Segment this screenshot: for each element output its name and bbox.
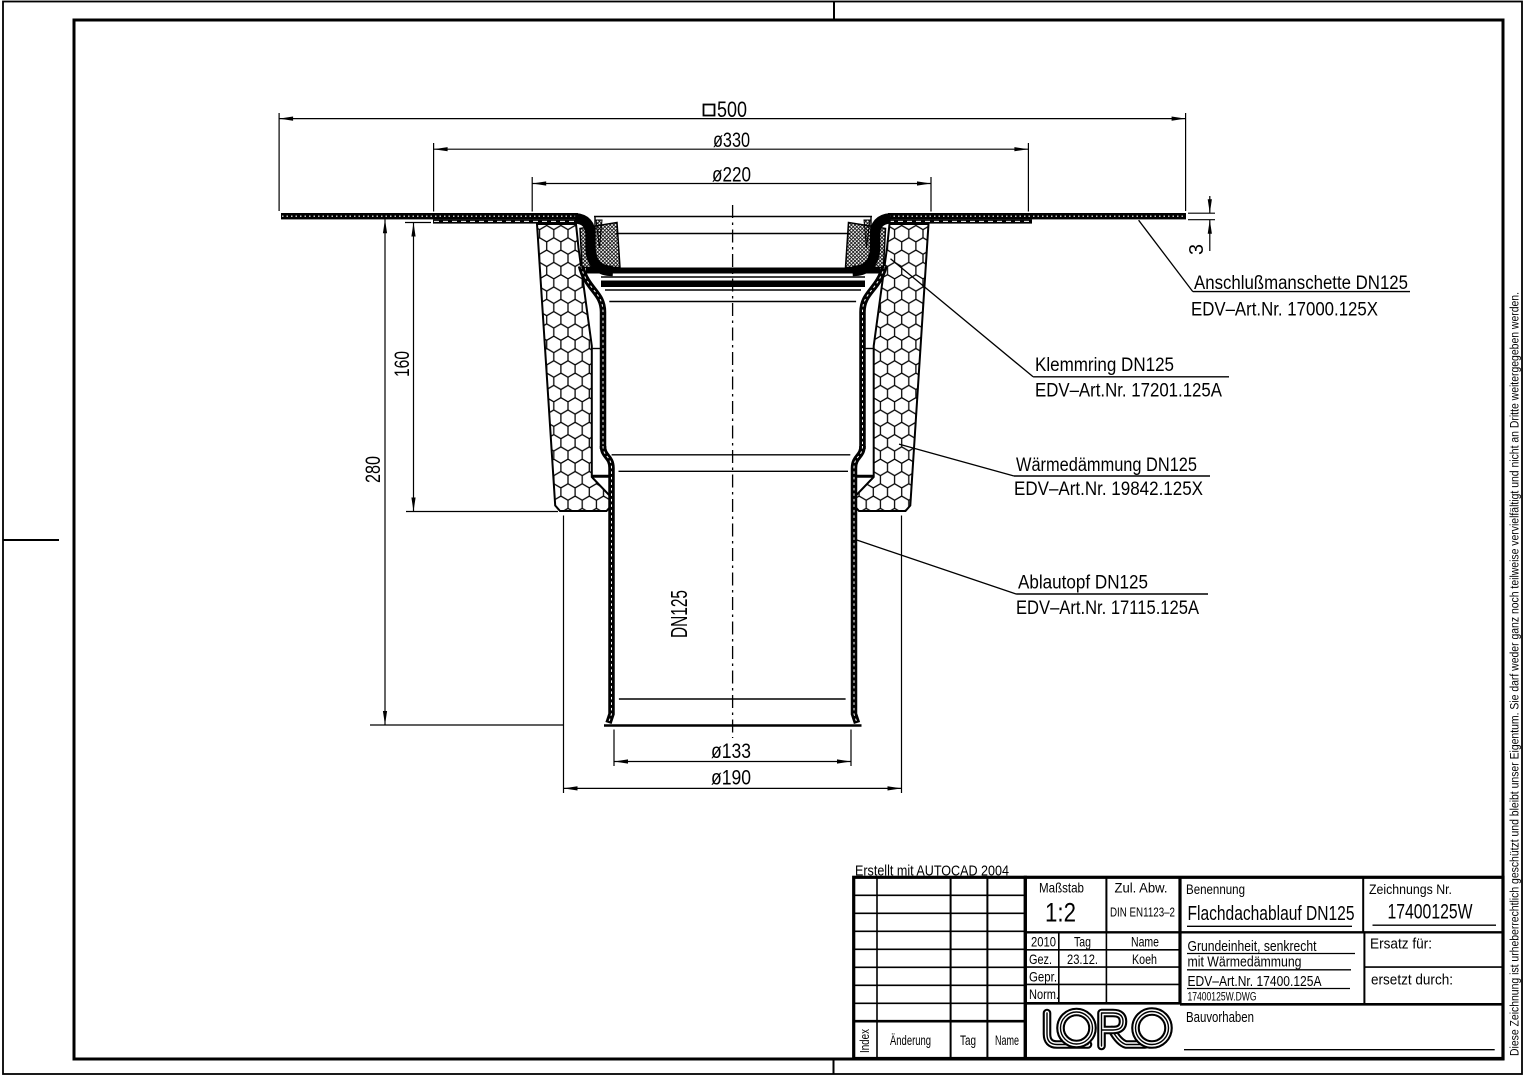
svg-text:Ersatz für:: Ersatz für: xyxy=(1370,937,1432,953)
svg-text:Bauvorhaben: Bauvorhaben xyxy=(1186,1010,1254,1026)
svg-text:Grundeinheit, senkrecht: Grundeinheit, senkrecht xyxy=(1188,939,1317,955)
svg-text:Zul. Abw.: Zul. Abw. xyxy=(1115,880,1168,896)
svg-text:160: 160 xyxy=(391,351,414,377)
svg-text:mit Wärmedämmung: mit Wärmedämmung xyxy=(1188,954,1302,970)
svg-text:EDV–Art.Nr. 19842.125X: EDV–Art.Nr. 19842.125X xyxy=(1014,479,1203,500)
svg-text:Wärmedämmung DN125: Wärmedämmung DN125 xyxy=(1016,455,1197,476)
svg-text:Tag: Tag xyxy=(1074,934,1091,950)
svg-text:Tag: Tag xyxy=(960,1033,976,1048)
svg-text:Name: Name xyxy=(1131,934,1159,950)
svg-text:Index: Index xyxy=(857,1029,872,1053)
svg-text:ø220: ø220 xyxy=(712,163,751,186)
svg-text:EDV–Art.Nr. 17400.125A: EDV–Art.Nr. 17400.125A xyxy=(1188,974,1322,990)
svg-text:Koeh: Koeh xyxy=(1132,951,1157,967)
svg-text:ø190: ø190 xyxy=(711,767,751,790)
svg-text:Änderung: Änderung xyxy=(890,1033,931,1048)
svg-text:ersetzt durch:: ersetzt durch: xyxy=(1371,973,1453,989)
svg-text:2010: 2010 xyxy=(1031,934,1056,950)
svg-text:Gepr.: Gepr. xyxy=(1029,969,1057,985)
svg-text:280: 280 xyxy=(362,456,385,483)
svg-text:Flachdachablauf DN125: Flachdachablauf DN125 xyxy=(1188,903,1355,925)
svg-text:Maßstab: Maßstab xyxy=(1039,880,1084,896)
svg-text:Gez.: Gez. xyxy=(1029,951,1052,967)
svg-text:Anschlußmanschette DN125: Anschlußmanschette DN125 xyxy=(1194,273,1408,294)
svg-text:EDV–Art.Nr. 17201.125A: EDV–Art.Nr. 17201.125A xyxy=(1035,381,1222,402)
svg-text:ø330: ø330 xyxy=(713,129,750,152)
svg-text:Klemmring DN125: Klemmring DN125 xyxy=(1035,355,1174,376)
svg-text:Zeichnungs Nr.: Zeichnungs Nr. xyxy=(1369,881,1452,897)
svg-text:17400125W: 17400125W xyxy=(1388,901,1473,924)
svg-text:Diese Zeichnung ist urheberrec: Diese Zeichnung ist urheberrechtlich ges… xyxy=(1510,292,1522,1056)
svg-text:DIN EN1123–2: DIN EN1123–2 xyxy=(1110,906,1175,920)
svg-text:ø133: ø133 xyxy=(711,740,751,763)
svg-text:Ablautopf DN125: Ablautopf DN125 xyxy=(1018,573,1148,594)
svg-text:EDV–Art.Nr. 17000.125X: EDV–Art.Nr. 17000.125X xyxy=(1191,300,1378,321)
svg-text:DN125: DN125 xyxy=(666,590,692,638)
svg-text:1:2: 1:2 xyxy=(1045,898,1076,928)
svg-text:23.12.: 23.12. xyxy=(1067,951,1098,967)
svg-text:3: 3 xyxy=(1186,244,1208,255)
svg-text:Benennung: Benennung xyxy=(1186,881,1245,897)
svg-text:17400125W.DWG: 17400125W.DWG xyxy=(1188,991,1257,1003)
svg-text:Norm.: Norm. xyxy=(1029,986,1059,1002)
svg-text:EDV–Art.Nr. 17115.125A: EDV–Art.Nr. 17115.125A xyxy=(1016,598,1199,619)
svg-text:Name: Name xyxy=(995,1033,1019,1048)
svg-text:500: 500 xyxy=(717,97,747,122)
